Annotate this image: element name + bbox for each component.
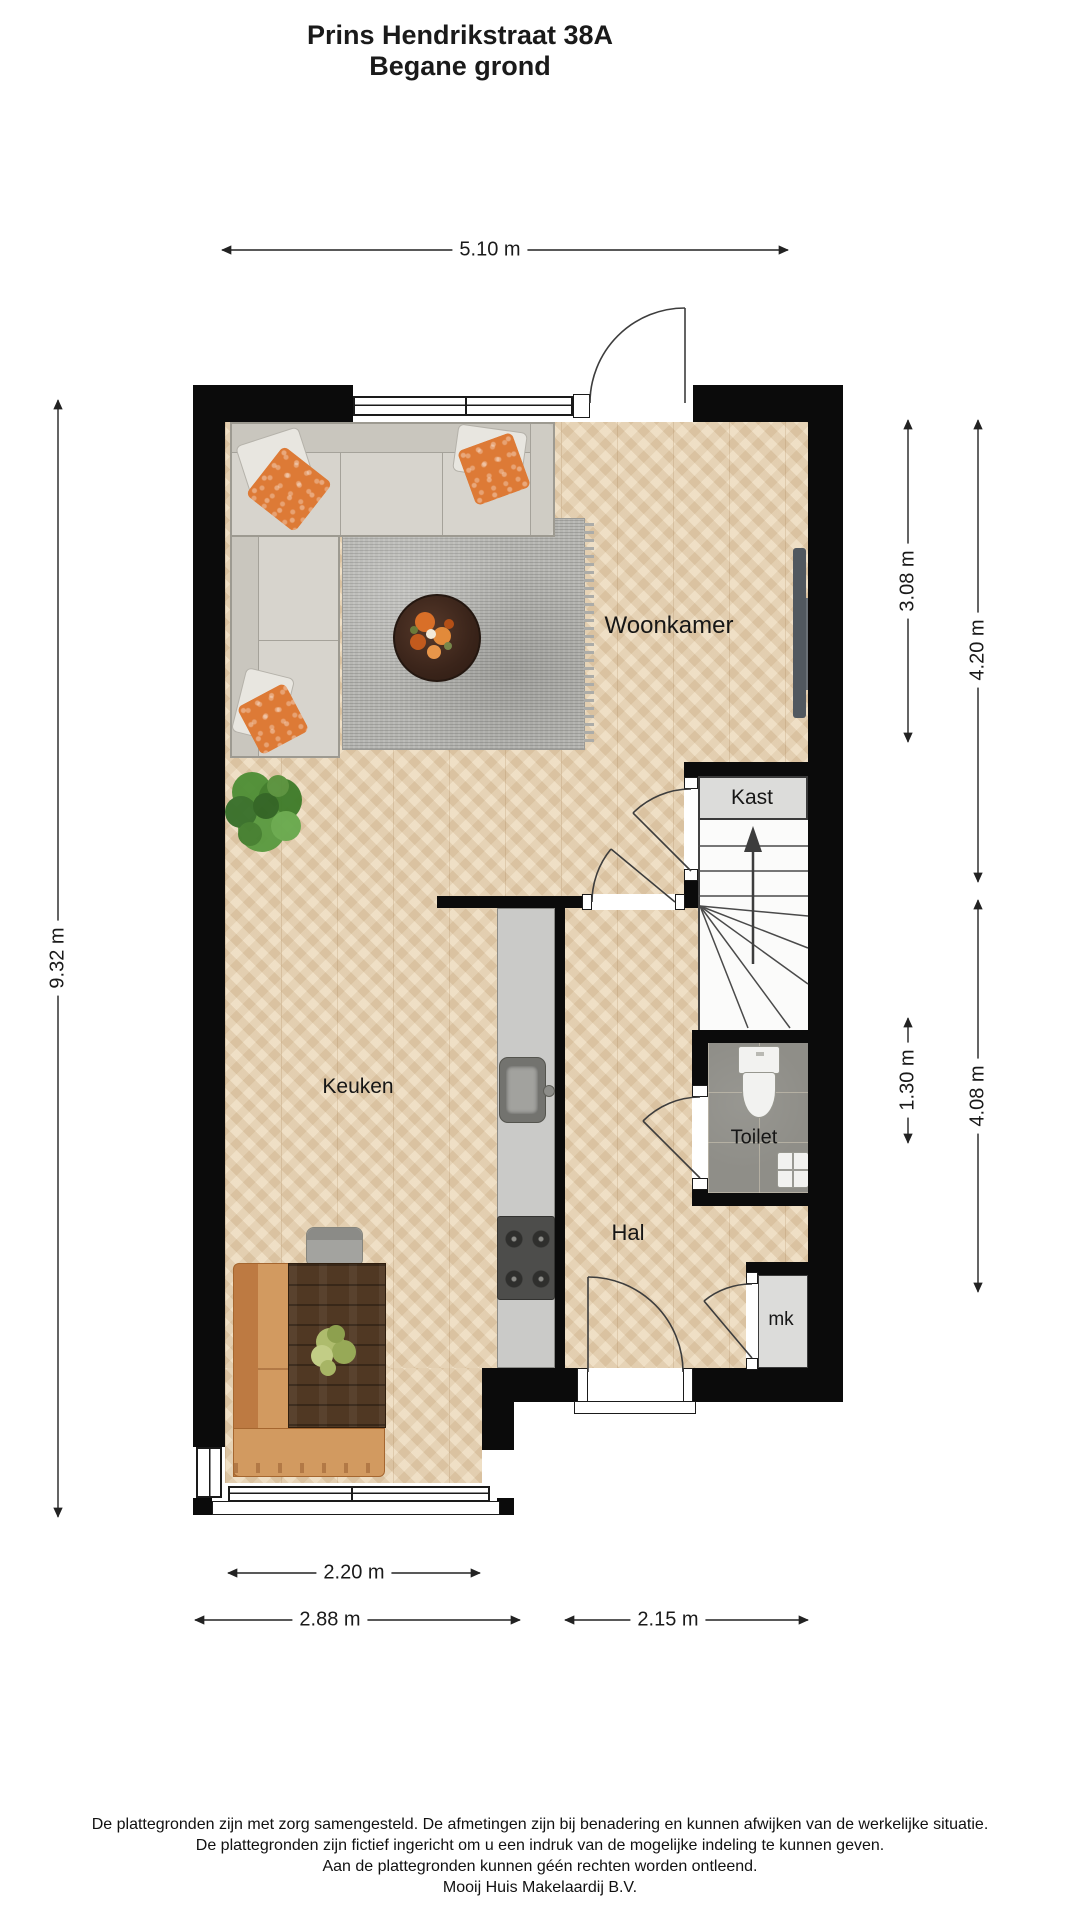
dim-bottom-left: 2.88 m — [292, 1609, 367, 1632]
table-centerpiece — [311, 1325, 356, 1376]
room-label-toilet: Toilet — [731, 1127, 778, 1150]
hall-door-swing — [592, 849, 675, 902]
room-label-hal: Hal — [611, 1220, 644, 1246]
dim-top-width: 5.10 m — [452, 239, 527, 262]
dimension-lines — [58, 250, 978, 1620]
livingroom-door-swing — [633, 789, 691, 871]
dim-bottom-window: 2.20 m — [316, 1562, 391, 1585]
floorplan-canvas: Prins Hendrikstraat 38A Begane grond — [0, 0, 1080, 1920]
coffee-table-flowers — [410, 612, 454, 659]
plant — [225, 772, 302, 852]
dim-bottom-right: 2.15 m — [630, 1609, 705, 1632]
dim-right-lower-outer: 4.08 m — [967, 1058, 990, 1133]
dim-right-upper-outer: 4.20 m — [967, 612, 990, 687]
room-label-woonkamer: Woonkamer — [605, 612, 734, 640]
front-door-swing — [588, 1277, 683, 1372]
toilet-door-swing — [643, 1097, 700, 1178]
garden-door-swing — [590, 308, 685, 403]
mk-door-swing — [704, 1284, 752, 1358]
room-label-mk: mk — [768, 1309, 793, 1331]
dim-left-height: 9.32 m — [47, 920, 70, 995]
plan-linework — [0, 0, 1080, 1920]
dim-right-lower-inner: 1.30 m — [897, 1042, 920, 1117]
room-label-keuken: Keuken — [322, 1075, 393, 1099]
room-label-kast: Kast — [731, 786, 773, 810]
dim-right-upper-inner: 3.08 m — [897, 543, 920, 618]
stair-direction-arrow — [744, 826, 762, 964]
